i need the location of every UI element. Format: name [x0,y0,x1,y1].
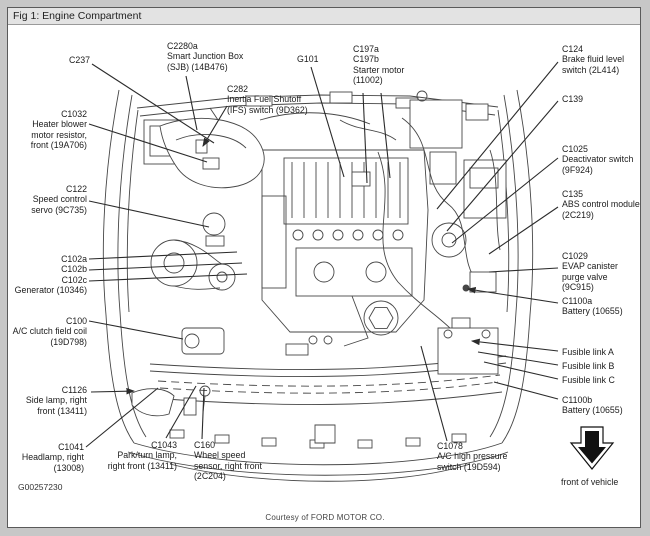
leader-fusible-a [472,341,558,351]
leader-fusible-c [484,362,558,379]
leader-g101 [311,67,344,177]
leader-c1041 [86,388,158,447]
leader-c1032 [89,124,207,162]
leader-c2280a [186,76,197,130]
leader-c102a [89,252,237,259]
leader-c135 [489,207,558,254]
leader-lines [0,0,650,536]
leader-c1126 [91,391,134,392]
leader-c197b [381,93,390,178]
leader-c139 [447,101,558,231]
courtesy-note: Courtesy of FORD MOTOR CO. [265,513,384,522]
leader-c1100a [468,289,558,303]
leader-c100 [89,321,183,339]
leader-c1029 [489,268,558,272]
leader-c1100b [494,382,558,399]
figure-number: G00257230 [18,482,62,492]
leader-c160 [202,388,204,439]
leader-c122 [89,201,209,227]
leader-c1043 [166,386,196,438]
leader-c197a [363,93,367,183]
leader-c124 [437,62,558,209]
leader-c282 [203,106,227,146]
leader-c102b [89,263,242,270]
leader-c102c [89,274,247,281]
leader-c1078 [421,346,447,441]
page: { "figure": { "title": "Fig 1: Engine Co… [0,0,650,536]
